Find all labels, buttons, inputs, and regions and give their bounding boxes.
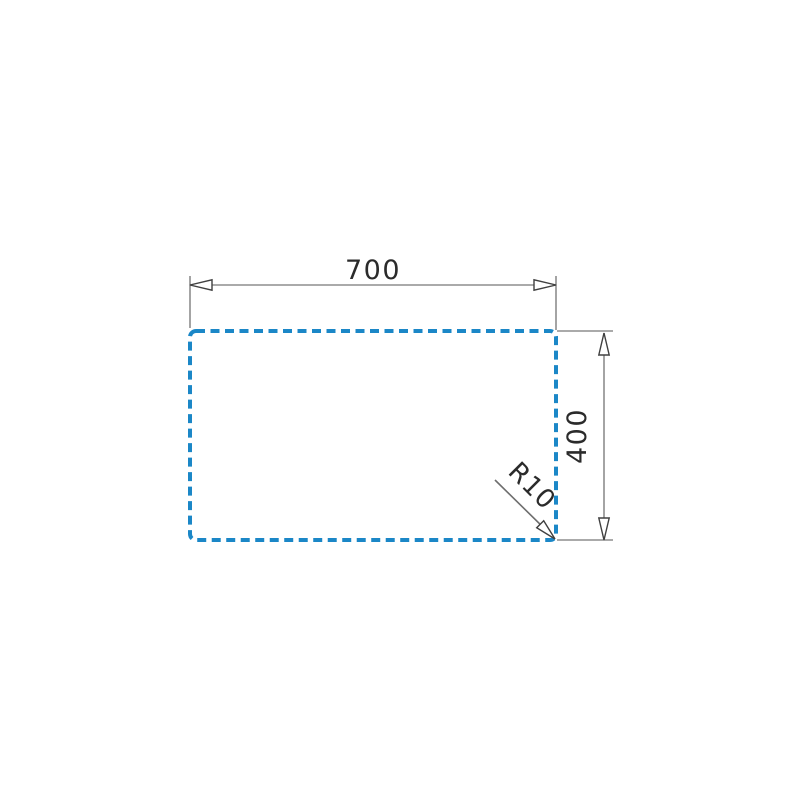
width-arrowhead-left-icon [190,280,212,290]
height-dimension: 400 [557,331,613,540]
radius-label: R10 [502,457,562,517]
cutout-outline-rect [190,331,556,540]
width-dimension: 700 [190,255,556,330]
height-dimension-label: 400 [562,408,593,464]
radius-callout: R10 [495,457,561,539]
width-arrowhead-right-icon [534,280,556,290]
height-arrowhead-top-icon [599,333,609,355]
height-arrowhead-bottom-icon [599,518,609,540]
drawing-canvas: 700 400 R10 [0,0,800,800]
width-dimension-label: 700 [345,255,401,286]
technical-drawing: 700 400 R10 [0,0,800,800]
